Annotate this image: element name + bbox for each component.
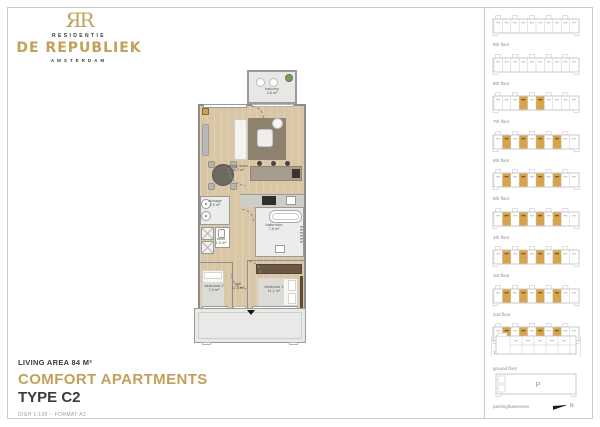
room-label-balcony: balcony 3,5 m²	[265, 86, 279, 96]
bar-stool	[257, 161, 262, 166]
armchair	[272, 118, 283, 129]
wardrobe	[256, 264, 302, 274]
floor-strip	[490, 130, 582, 154]
terrace-tab	[289, 342, 298, 345]
floor-strip	[490, 284, 582, 308]
floor-label: ground floor	[493, 367, 582, 372]
window	[203, 104, 247, 108]
floor-key-row: 3rd floor	[490, 245, 586, 279]
sidebar-divider	[484, 8, 485, 418]
towel-radiator	[300, 226, 303, 244]
door-swing-arc	[249, 261, 261, 273]
balcony-door	[252, 104, 294, 107]
room-label-bathroom: bathroom 7,8 m²	[266, 222, 283, 232]
room-label-bedroom1: bedroom 1 11,1 m²	[264, 284, 283, 294]
room-label-living: living room 38,7 m²	[228, 163, 247, 173]
room-area: 1,5 m²	[216, 241, 227, 246]
drawing-sheet: ЯR RESIDENTIE DE REPUBLIEK AMSTERDAM	[0, 0, 600, 427]
bath-sink	[275, 245, 285, 253]
dining-chair	[230, 183, 237, 190]
floor-strip	[490, 53, 582, 77]
category-title: COMFORT APARTMENTS	[18, 371, 208, 388]
door-swing-arc	[242, 209, 254, 221]
stove	[262, 196, 276, 205]
room-area: 38,7 m²	[228, 168, 247, 173]
terrace-inner-line	[198, 312, 302, 339]
parking-mark: P	[536, 382, 541, 389]
room-area: 2,5 m²	[208, 203, 221, 208]
headboard	[300, 276, 303, 308]
type-title: TYPE C2	[18, 389, 208, 406]
floor-plan: balcony 3,5 m² living room 38,7 m² stora…	[190, 64, 312, 348]
title-block: LIVING AREA 84 M² COMFORT APARTMENTS TYP…	[18, 358, 208, 418]
floor-label: 8th floor	[493, 82, 586, 87]
floor-key-row: 8th floor	[490, 53, 586, 87]
room-area: 7,8 m²	[266, 227, 283, 232]
terrace	[194, 308, 306, 343]
pillow	[288, 280, 296, 291]
room-area: 12,5 m²	[232, 286, 245, 291]
room-label-toilet: toilet 1,5 m²	[216, 236, 227, 246]
floor-strip	[490, 245, 582, 269]
pillow	[288, 293, 296, 304]
room-label-hall: hall 12,5 m²	[232, 281, 245, 291]
floor-key-row: 2nd floor	[490, 284, 586, 318]
parking-strip: P	[490, 372, 582, 400]
floor-strip	[490, 207, 582, 231]
north-label: N	[570, 403, 574, 409]
room-area: 3,5 m²	[265, 91, 279, 96]
floor-strip	[490, 14, 582, 38]
floor-label: 7th floor	[493, 120, 586, 125]
brand-residentie: RESIDENTIE	[14, 33, 144, 39]
floor-strip	[490, 168, 582, 192]
shaft	[201, 241, 214, 254]
north-arrow-icon	[552, 400, 568, 411]
north-arrow: N	[552, 400, 574, 411]
brand-city: AMSTERDAM	[14, 58, 144, 63]
living-area-text: LIVING AREA 84 M²	[18, 358, 208, 367]
floor-strip	[490, 91, 582, 115]
brand-name: DE REPUBLIEK	[14, 40, 144, 56]
brand-logo: ЯR RESIDENTIE DE REPUBLIEK AMSTERDAM	[14, 10, 144, 63]
floor-label: 4th floor	[493, 236, 586, 241]
shaft	[201, 227, 214, 240]
bar-stool	[271, 161, 276, 166]
pillow	[204, 272, 222, 279]
wall	[247, 260, 304, 261]
floor-key-row: 6th floor	[490, 130, 586, 164]
room-label-storage: storage 2,5 m²	[208, 198, 221, 208]
meter-box	[202, 108, 209, 115]
dining-chair	[208, 161, 215, 168]
floor-label: 9th floor	[493, 43, 586, 48]
floor-key-list: 9th floor8th floor7th floor6th floor5th …	[490, 14, 586, 361]
scale-format-text: DISH 1:100 – FORMAT A3	[18, 412, 208, 418]
room-area: 11,1 m²	[264, 289, 283, 294]
sideboard	[202, 124, 209, 156]
balcony-chair	[256, 78, 265, 87]
floor-key-row: 5th floor	[490, 168, 586, 202]
floor-key-row: 4th floor	[490, 207, 586, 241]
door-swing-arc	[252, 106, 264, 118]
plant-icon	[285, 74, 293, 82]
floor-label: 3rd floor	[493, 274, 586, 279]
wall	[200, 262, 233, 263]
room-label-bedroom2: bedroom 2 7,4 m²	[204, 283, 223, 293]
ground-floor-strip	[490, 332, 582, 362]
floor-key-row: 7th floor	[490, 91, 586, 125]
sofa	[234, 119, 247, 160]
island-appliance	[292, 169, 300, 178]
dryer	[201, 211, 211, 221]
terrace-tab	[202, 342, 211, 345]
floor-key-row: 9th floor	[490, 14, 586, 48]
coffee-table	[257, 129, 273, 147]
floor-label: 2nd floor	[493, 313, 586, 318]
kitchen-sink	[286, 196, 296, 205]
dining-chair	[208, 183, 215, 190]
floor-label: 5th floor	[493, 197, 586, 202]
floor-label: 6th floor	[493, 159, 586, 164]
wall	[247, 260, 248, 310]
bar-stool	[285, 161, 290, 166]
entrance-marker-icon	[247, 310, 255, 315]
brand-monogram-icon: ЯR	[14, 10, 144, 30]
ground-floor-key: ground floor	[490, 332, 582, 372]
room-area: 7,4 m²	[204, 288, 223, 293]
